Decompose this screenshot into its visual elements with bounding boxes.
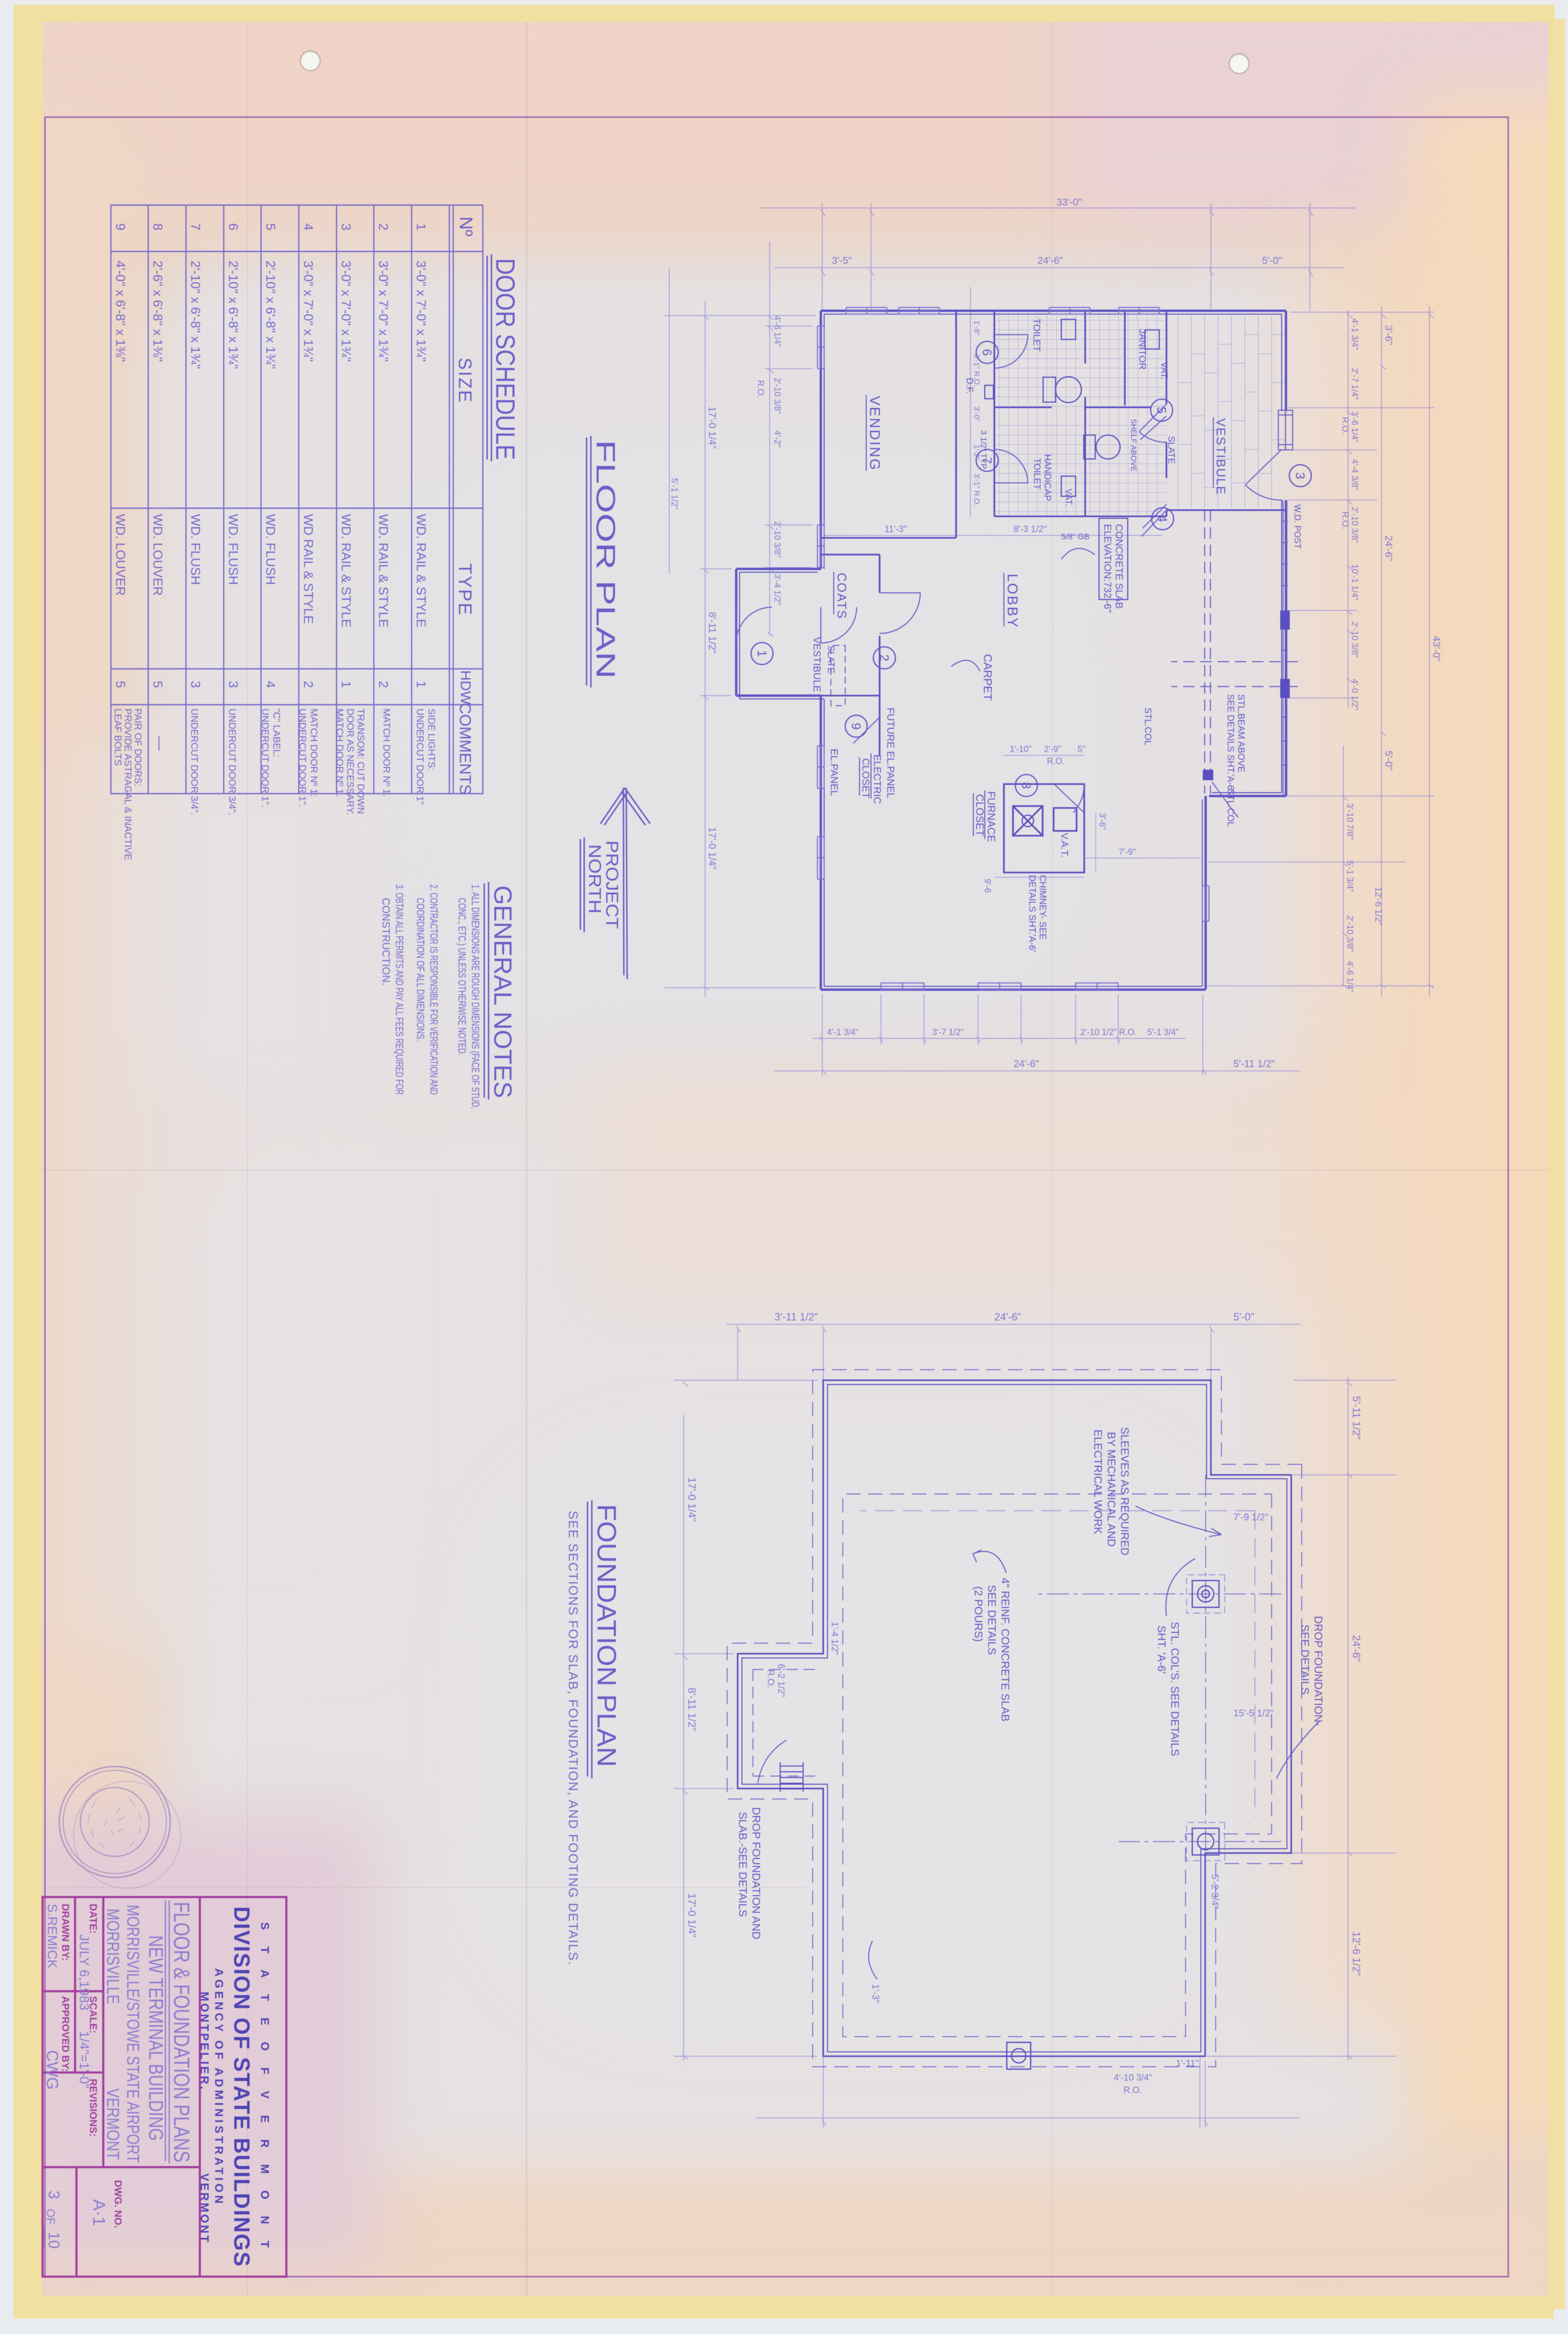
- svg-text:5'-11 1/2": 5'-11 1/2": [1350, 1396, 1362, 1440]
- svg-text:HDW: HDW: [457, 670, 473, 705]
- svg-text:Nº: Nº: [456, 217, 476, 236]
- svg-text:WD. RAIL & STYLE: WD. RAIL & STYLE: [339, 514, 353, 628]
- svg-text:SIDE LIGHTS:: SIDE LIGHTS:: [426, 709, 436, 771]
- svg-text:1/4"=1'-0": 1/4"=1'-0": [77, 2031, 92, 2089]
- svg-text:DROP FOUNDATION AND: DROP FOUNDATION AND: [750, 1807, 762, 1939]
- svg-text:3 1/2" TYP.: 3 1/2" TYP.: [979, 430, 988, 470]
- svg-text:PROVIDE ASTRAGAL & INACTIVE: PROVIDE ASTRAGAL & INACTIVE: [122, 709, 133, 860]
- svg-text:8: 8: [151, 223, 165, 230]
- svg-text:4'-6 1/4": 4'-6 1/4": [1345, 961, 1355, 992]
- svg-text:WD. LOUVER: WD. LOUVER: [113, 514, 128, 596]
- svg-text:3'-6": 3'-6": [1098, 813, 1107, 830]
- svg-text:4'-4 3/8": 4'-4 3/8": [1350, 459, 1360, 491]
- svg-text:33'-0": 33'-0": [1056, 197, 1082, 208]
- svg-text:"C" LABEL:: "C" LABEL:: [271, 709, 282, 757]
- svg-text:S T A T E O F V E R M O N: S T A T E O F V E R M O N T: [258, 1922, 271, 2255]
- svg-text:1: 1: [339, 681, 353, 688]
- svg-text:1'-4 1/2": 1'-4 1/2": [829, 1622, 839, 1655]
- svg-text:5/8" GB: 5/8" GB: [1061, 532, 1089, 541]
- svg-text:2: 2: [376, 223, 391, 230]
- svg-text:W.D. POST: W.D. POST: [1293, 504, 1302, 549]
- svg-text:OF: OF: [44, 2209, 57, 2225]
- svg-text:R.O.: R.O.: [1123, 2085, 1142, 2095]
- svg-text:2: 2: [301, 681, 316, 688]
- svg-text:UNDERCUT DOOR 1": UNDERCUT DOOR 1": [414, 709, 425, 805]
- svg-text:DOOR AS NECESSARY.: DOOR AS NECESSARY.: [345, 709, 355, 815]
- svg-text:TOILET: TOILET: [1031, 318, 1042, 352]
- svg-text:CHIMNEY- SEE: CHIMNEY- SEE: [1037, 875, 1047, 940]
- svg-text:A·1: A·1: [89, 2199, 109, 2226]
- svg-text:2'-10 3/8": 2'-10 3/8": [1345, 916, 1355, 952]
- svg-text:R.O.: R.O.: [756, 380, 765, 398]
- svg-text:WD. RAIL & STYLE: WD. RAIL & STYLE: [414, 514, 428, 628]
- svg-text:VERMONT: VERMONT: [198, 2173, 211, 2244]
- svg-text:24'-6": 24'-6": [1037, 255, 1063, 266]
- svg-text:AGENCY OF ADMINISTRATION: AGENCY OF ADMINISTRATION: [212, 1968, 225, 2206]
- svg-text:5'-0": 5'-0": [1233, 1311, 1254, 1323]
- svg-text:FURNACE: FURNACE: [985, 791, 997, 842]
- svg-text:CONC., ETC.) UNLESS OTHERWISE: CONC., ETC.) UNLESS OTHERWISE NOTED.: [456, 898, 468, 1056]
- svg-text:3. OBTAIN ALL PERMITS AND PAY: 3. OBTAIN ALL PERMITS AND PAY ALL FEES R…: [393, 884, 405, 1095]
- svg-text:3: 3: [339, 223, 353, 230]
- svg-text:6: 6: [980, 349, 994, 356]
- svg-text:FLOOR & FOUNDATION PLANS: FLOOR & FOUNDATION PLANS: [169, 1902, 194, 2162]
- svg-text:ELECTRIC: ELECTRIC: [871, 754, 882, 804]
- svg-text:CONSTRUCTION.: CONSTRUCTION.: [380, 898, 392, 985]
- svg-text:WD. LOUVER: WD. LOUVER: [151, 514, 165, 596]
- svg-text:3'-6 1/4": 3'-6 1/4": [1350, 411, 1360, 443]
- svg-text:R.O.: R.O.: [765, 1669, 775, 1688]
- svg-text:CWG: CWG: [43, 2050, 61, 2090]
- svg-text:MORRISVILLE: MORRISVILLE: [103, 1909, 123, 2004]
- svg-text:DOOR SCHEDULE: DOOR SCHEDULE: [490, 258, 521, 460]
- svg-text:UNDERCUT DOOR 1".: UNDERCUT DOOR 1".: [260, 709, 270, 807]
- svg-text:5": 5": [1078, 744, 1085, 754]
- svg-text:3'-7 1/2": 3'-7 1/2": [932, 1027, 964, 1037]
- svg-text:SEE DETAILS SHT.'A-6': SEE DETAILS SHT.'A-6': [1225, 694, 1235, 792]
- svg-text:43'-0": 43'-0": [1431, 636, 1442, 662]
- svg-text:2: 2: [376, 681, 391, 688]
- svg-text:DRAWN BY:: DRAWN BY:: [60, 1904, 71, 1961]
- svg-text:4'-6 1/4": 4'-6 1/4": [773, 316, 782, 347]
- svg-text:3'-11 1/2": 3'-11 1/2": [774, 1311, 818, 1323]
- svg-text:4'-1 3/4": 4'-1 3/4": [1350, 318, 1360, 350]
- svg-text:SHT. 'A-6': SHT. 'A-6': [1155, 1625, 1168, 1674]
- svg-text:WD. FLUSH: WD. FLUSH: [226, 514, 240, 585]
- svg-text:COMMENTS: COMMENTS: [457, 703, 474, 795]
- svg-text:VESTIBULE: VESTIBULE: [1214, 418, 1228, 495]
- svg-text:NORTH: NORTH: [585, 844, 605, 914]
- svg-text:PAIR OF DOORS:: PAIR OF DOORS:: [132, 709, 143, 786]
- svg-text:4: 4: [263, 681, 278, 688]
- svg-text:10: 10: [45, 2232, 63, 2249]
- svg-text:—: —: [152, 736, 168, 751]
- svg-text:2. CONTRACTOR IS RESPONSIBLE F: 2. CONTRACTOR IS RESPONSIBLE FOR VERIFIC…: [428, 884, 440, 1095]
- svg-text:11'-3": 11'-3": [884, 524, 907, 534]
- svg-text:2'-10" x 6'-8" x 1¾": 2'-10" x 6'-8" x 1¾": [188, 261, 203, 369]
- svg-text:SLAB.-SEE DETAILS: SLAB.-SEE DETAILS: [737, 1812, 749, 1917]
- svg-text:TYPE: TYPE: [455, 563, 475, 616]
- svg-text:5'-1 3/4": 5'-1 3/4": [1147, 1027, 1179, 1037]
- svg-text:5'-0": 5'-0": [1383, 751, 1394, 771]
- svg-text:MORRISVILLE/STOWE STATE AIRPOR: MORRISVILLE/STOWE STATE AIRPORT: [123, 1905, 143, 2163]
- svg-text:FUTURE EL.PANEL: FUTURE EL.PANEL: [885, 708, 896, 798]
- svg-text:7'-9": 7'-9": [1119, 847, 1136, 857]
- svg-text:VESTIBULE: VESTIBULE: [811, 637, 822, 692]
- svg-text:4'-1 3/4": 4'-1 3/4": [827, 1027, 859, 1037]
- svg-text:8: 8: [1019, 782, 1034, 789]
- svg-text:7'-9 1/2": 7'-9 1/2": [1233, 1512, 1268, 1523]
- svg-text:2: 2: [877, 654, 892, 661]
- svg-text:1'-10": 1'-10": [1010, 744, 1032, 754]
- svg-text:SLATE: SLATE: [826, 645, 836, 674]
- svg-text:CARPET: CARPET: [981, 654, 994, 701]
- svg-text:5: 5: [151, 681, 165, 688]
- svg-text:FLOOR PLAN: FLOOR PLAN: [591, 440, 621, 679]
- svg-text:D.F.: D.F.: [964, 378, 974, 394]
- svg-text:SEE SECTIONS FOR SLAB, FOUNDAT: SEE SECTIONS FOR SLAB, FOUNDATION, AND F…: [566, 1511, 580, 1965]
- svg-text:4: 4: [1155, 515, 1170, 522]
- svg-text:WD RAIL & STYLE: WD RAIL & STYLE: [301, 514, 316, 624]
- svg-text:MATCH DOOR Nº 1.: MATCH DOOR Nº 1.: [381, 709, 392, 797]
- svg-text:3'-4 1/2": 3'-4 1/2": [773, 574, 782, 605]
- svg-text:5: 5: [263, 223, 278, 230]
- svg-text:CLOSET: CLOSET: [860, 758, 871, 798]
- svg-text:TRANSOM: CUT DOWN: TRANSOM: CUT DOWN: [355, 709, 366, 814]
- svg-text:ELEVATION:732'-6": ELEVATION:732'-6": [1102, 524, 1113, 613]
- svg-text:DIVISION OF STATE BUILDINGS: DIVISION OF STATE BUILDINGS: [229, 1906, 254, 2267]
- svg-text:R.O.: R.O.: [1047, 756, 1065, 766]
- svg-text:COATS: COATS: [835, 573, 849, 620]
- svg-text:(2 POURS): (2 POURS): [972, 1586, 985, 1642]
- svg-text:HANDICAP: HANDICAP: [1042, 454, 1052, 501]
- svg-text:10'-1 1/4": 10'-1 1/4": [1350, 564, 1360, 600]
- svg-text:9: 9: [849, 723, 863, 730]
- svg-text:VENDING: VENDING: [867, 396, 882, 471]
- svg-text:SLATE: SLATE: [1166, 436, 1176, 464]
- svg-text:1. ALL DIMENSIONS ARE ROUGH DI: 1. ALL DIMENSIONS ARE ROUGH DIMENSIONS (…: [469, 884, 481, 1109]
- svg-text:2'-10" x 6'-8" x 1¾": 2'-10" x 6'-8" x 1¾": [263, 261, 278, 369]
- svg-text:FOUNDATION PLAN: FOUNDATION PLAN: [592, 1504, 622, 1767]
- svg-text:UNDERCUT DOOR 3/4".: UNDERCUT DOOR 3/4".: [227, 709, 237, 815]
- svg-text:STL.COL: STL.COL: [1225, 789, 1235, 827]
- svg-text:3'-0" x 7'-0" x 1¾": 3'-0" x 7'-0" x 1¾": [301, 261, 316, 362]
- svg-text:15'-5 1/2": 15'-5 1/2": [1233, 1708, 1274, 1719]
- svg-text:4'-2": 4'-2": [773, 430, 782, 447]
- svg-text:3'-10 7/8": 3'-10 7/8": [1345, 803, 1355, 840]
- svg-text:4'-10 3/4": 4'-10 3/4": [1114, 2073, 1152, 2083]
- svg-text:LEAF BOLTS: LEAF BOLTS: [112, 709, 123, 766]
- svg-text:JANITOR: JANITOR: [1137, 329, 1147, 370]
- svg-text:CLOSET: CLOSET: [974, 794, 986, 836]
- svg-text:12'-6 1/2": 12'-6 1/2": [1350, 1931, 1362, 1976]
- svg-text:NEW TERMINAL BUILDING: NEW TERMINAL BUILDING: [145, 1935, 167, 2141]
- svg-text:24'-6": 24'-6": [1383, 535, 1394, 561]
- svg-text:3: 3: [1293, 472, 1307, 479]
- svg-text:24'-6": 24'-6": [1350, 1635, 1362, 1662]
- svg-text:3'-0" x 7'-0" x 1¾": 3'-0" x 7'-0" x 1¾": [339, 261, 353, 362]
- svg-text:APPROVED BY:: APPROVED BY:: [60, 1996, 71, 2072]
- svg-text:BY MECHANICAL AND: BY MECHANICAL AND: [1105, 1432, 1118, 1547]
- svg-text:VERMONT: VERMONT: [103, 2088, 123, 2160]
- svg-text:6'-2 1/2": 6'-2 1/2": [776, 1664, 786, 1697]
- svg-text:STL.COL: STL.COL: [1143, 708, 1153, 745]
- svg-text:2'-10 3/8": 2'-10 3/8": [773, 521, 782, 557]
- svg-text:3: 3: [226, 681, 240, 688]
- svg-text:2'-9": 2'-9": [1044, 744, 1061, 754]
- svg-text:5'-2 3/4": 5'-2 3/4": [1209, 1874, 1220, 1909]
- svg-text:2'-7 1/4": 2'-7 1/4": [1350, 368, 1360, 400]
- svg-text:3'-0": 3'-0": [972, 406, 980, 422]
- svg-text:3'-1" R.O.: 3'-1" R.O.: [972, 473, 980, 506]
- svg-text:1'-3": 1'-3": [870, 1984, 881, 2003]
- svg-text:3: 3: [45, 2191, 63, 2199]
- svg-text:2'-10 3/8": 2'-10 3/8": [1350, 622, 1360, 658]
- svg-text:5: 5: [113, 681, 128, 688]
- svg-text:5'-0": 5'-0": [1262, 255, 1282, 266]
- svg-text:7: 7: [188, 223, 203, 230]
- svg-text:2'-10" x 6'-8" x 1¾": 2'-10" x 6'-8" x 1¾": [226, 261, 240, 369]
- svg-text:4: 4: [301, 223, 316, 230]
- svg-text:R.O.: R.O.: [1340, 417, 1350, 435]
- svg-text:8'-11 1/2": 8'-11 1/2": [707, 612, 718, 654]
- svg-text:3'-5": 3'-5": [832, 255, 852, 266]
- svg-text:24'-6": 24'-6": [1013, 1058, 1039, 1069]
- svg-text:GENERAL NOTES: GENERAL NOTES: [489, 885, 516, 1098]
- svg-text:JULY 6,1983: JULY 6,1983: [77, 1934, 92, 2010]
- svg-text:SIZE: SIZE: [455, 358, 475, 404]
- svg-text:VAT.: VAT.: [1159, 362, 1169, 380]
- svg-text:8'-3 1/2": 8'-3 1/2": [1013, 524, 1047, 534]
- svg-text:MATCH DOOR Nº 1:: MATCH DOOR Nº 1:: [308, 709, 319, 797]
- svg-text:4" REINF. CONCRETE SLAB: 4" REINF. CONCRETE SLAB: [999, 1578, 1012, 1722]
- svg-text:SHELF ABOVE: SHELF ABOVE: [1129, 419, 1137, 471]
- svg-text:V.A.T.: V.A.T.: [1059, 833, 1069, 858]
- svg-text:9: 9: [113, 223, 128, 230]
- svg-text:1'-8": 1'-8": [972, 320, 980, 336]
- svg-text:3'-0" x 7'-0" x 1¾": 3'-0" x 7'-0" x 1¾": [414, 261, 428, 362]
- svg-text:5'-1 3/4": 5'-1 3/4": [1345, 861, 1355, 892]
- svg-text:UNDERCUT DOOR 1".: UNDERCUT DOOR 1".: [297, 709, 307, 807]
- svg-text:R.O.: R.O.: [1340, 512, 1350, 529]
- svg-text:MONTPELIER,: MONTPELIER,: [198, 1992, 211, 2091]
- svg-text:17'-0 1/4": 17'-0 1/4": [707, 827, 718, 870]
- svg-text:WD. FLUSH: WD. FLUSH: [263, 514, 278, 585]
- svg-text:8'-11 1/2": 8'-11 1/2": [686, 1688, 698, 1731]
- svg-text:2'-10 3/8": 2'-10 3/8": [1350, 507, 1360, 543]
- svg-text:COORDINATION OF ALL DIMENSIONS: COORDINATION OF ALL DIMENSIONS.: [414, 898, 426, 1041]
- svg-text:3: 3: [188, 681, 203, 688]
- svg-text:4'-0" x 6'-8" x 1⅜": 4'-0" x 6'-8" x 1⅜": [113, 261, 128, 362]
- svg-text:UNDERCUT DOOR 3/4".: UNDERCUT DOOR 3/4".: [189, 709, 199, 815]
- svg-text:1: 1: [414, 681, 428, 688]
- svg-text:2'-6" x 6'-8" x 1⅜": 2'-6" x 6'-8" x 1⅜": [151, 261, 165, 362]
- svg-text:SEE DETAILS: SEE DETAILS: [1299, 1625, 1311, 1695]
- svg-text:24'-6": 24'-6": [994, 1311, 1021, 1323]
- svg-text:12'-6 1/2": 12'-6 1/2": [1373, 887, 1383, 925]
- svg-text:2'-10 1/2" R.O.: 2'-10 1/2" R.O.: [1080, 1027, 1137, 1037]
- svg-text:17'-0 1/4": 17'-0 1/4": [707, 406, 718, 449]
- svg-text:LOBBY: LOBBY: [1004, 574, 1020, 629]
- svg-text:SEE DETAILS: SEE DETAILS: [986, 1585, 998, 1655]
- svg-text:5'-11 1/2": 5'-11 1/2": [1233, 1058, 1275, 1069]
- svg-text:3'-0" x 7'-0" x 1¾": 3'-0" x 7'-0" x 1¾": [376, 261, 391, 362]
- svg-text:EL.PANEL: EL.PANEL: [828, 749, 839, 796]
- svg-text:1: 1: [755, 650, 769, 657]
- svg-text:STL.BEAM ABOVE: STL.BEAM ABOVE: [1236, 694, 1246, 773]
- svg-text:DETAILS SHT.'A-6': DETAILS SHT.'A-6': [1027, 875, 1037, 952]
- svg-text:5: 5: [1154, 407, 1169, 414]
- svg-text:SLEEVES AS REQUIRED: SLEEVES AS REQUIRED: [1119, 1427, 1131, 1555]
- svg-text:DATE:: DATE:: [87, 1904, 98, 1934]
- svg-text:DROP FOUNDATION-: DROP FOUNDATION-: [1312, 1616, 1325, 1726]
- svg-text:DWG. NO.: DWG. NO.: [112, 2180, 123, 2228]
- svg-text:3'-6": 3'-6": [1383, 325, 1394, 345]
- svg-text:CONCRETE SLAB: CONCRETE SLAB: [1113, 524, 1124, 609]
- svg-text:WD. FLUSH: WD. FLUSH: [188, 514, 203, 585]
- svg-text:17'-0 1/4": 17'-0 1/4": [686, 1477, 698, 1522]
- svg-text:WD. RAIL & STYLE: WD. RAIL & STYLE: [376, 514, 391, 628]
- svg-text:MATCH DOOR Nº 1.: MATCH DOOR Nº 1.: [334, 709, 345, 797]
- svg-text:1: 1: [414, 223, 428, 230]
- svg-text:PROJECT: PROJECT: [602, 840, 622, 929]
- svg-text:STL. COL'S. SEE DETAILS: STL. COL'S. SEE DETAILS: [1169, 1622, 1181, 1756]
- svg-text:9'-6: 9'-6: [983, 879, 992, 893]
- svg-text:5'-1 1/2": 5'-1 1/2": [670, 478, 679, 510]
- svg-text:TOILET: TOILET: [1032, 458, 1042, 490]
- svg-text:17'-0 1/4": 17'-0 1/4": [686, 1893, 698, 1938]
- svg-text:4'-0 1/2": 4'-0 1/2": [1350, 679, 1360, 710]
- svg-text:S.REMICK: S.REMICK: [45, 1904, 60, 1969]
- svg-text:6: 6: [226, 223, 240, 230]
- svg-text:2'-10 3/8": 2'-10 3/8": [773, 378, 782, 414]
- svg-text:VAT.: VAT.: [1063, 489, 1073, 506]
- svg-text:ELECTRICAL WORK: ELECTRICAL WORK: [1092, 1429, 1104, 1535]
